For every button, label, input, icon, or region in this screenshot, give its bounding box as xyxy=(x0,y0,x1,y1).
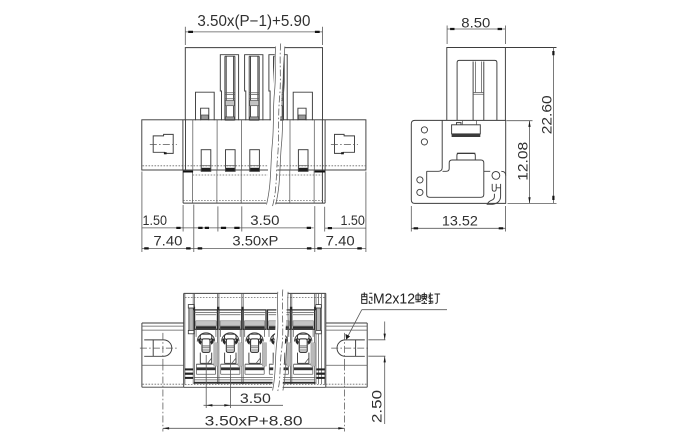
svg-text:M2x12: M2x12 xyxy=(373,291,415,308)
svg-text:3.50: 3.50 xyxy=(240,390,271,406)
svg-text:13.52: 13.52 xyxy=(442,212,478,228)
svg-text:3.50xP+8.80: 3.50xP+8.80 xyxy=(205,412,303,428)
svg-text:8.50: 8.50 xyxy=(461,14,490,30)
svg-text:7.40: 7.40 xyxy=(153,233,182,249)
svg-text:3.50x(P−1)+5.90: 3.50x(P−1)+5.90 xyxy=(197,13,310,30)
svg-text:1.50: 1.50 xyxy=(340,212,365,228)
svg-text:3.50: 3.50 xyxy=(250,212,279,228)
svg-text:2.50: 2.50 xyxy=(369,390,385,423)
svg-text:7.40: 7.40 xyxy=(326,233,355,249)
svg-text:22.60: 22.60 xyxy=(538,95,554,134)
svg-text:12.08: 12.08 xyxy=(515,142,531,181)
svg-text:3.50xP: 3.50xP xyxy=(232,233,278,249)
svg-text:1.50: 1.50 xyxy=(143,212,168,228)
